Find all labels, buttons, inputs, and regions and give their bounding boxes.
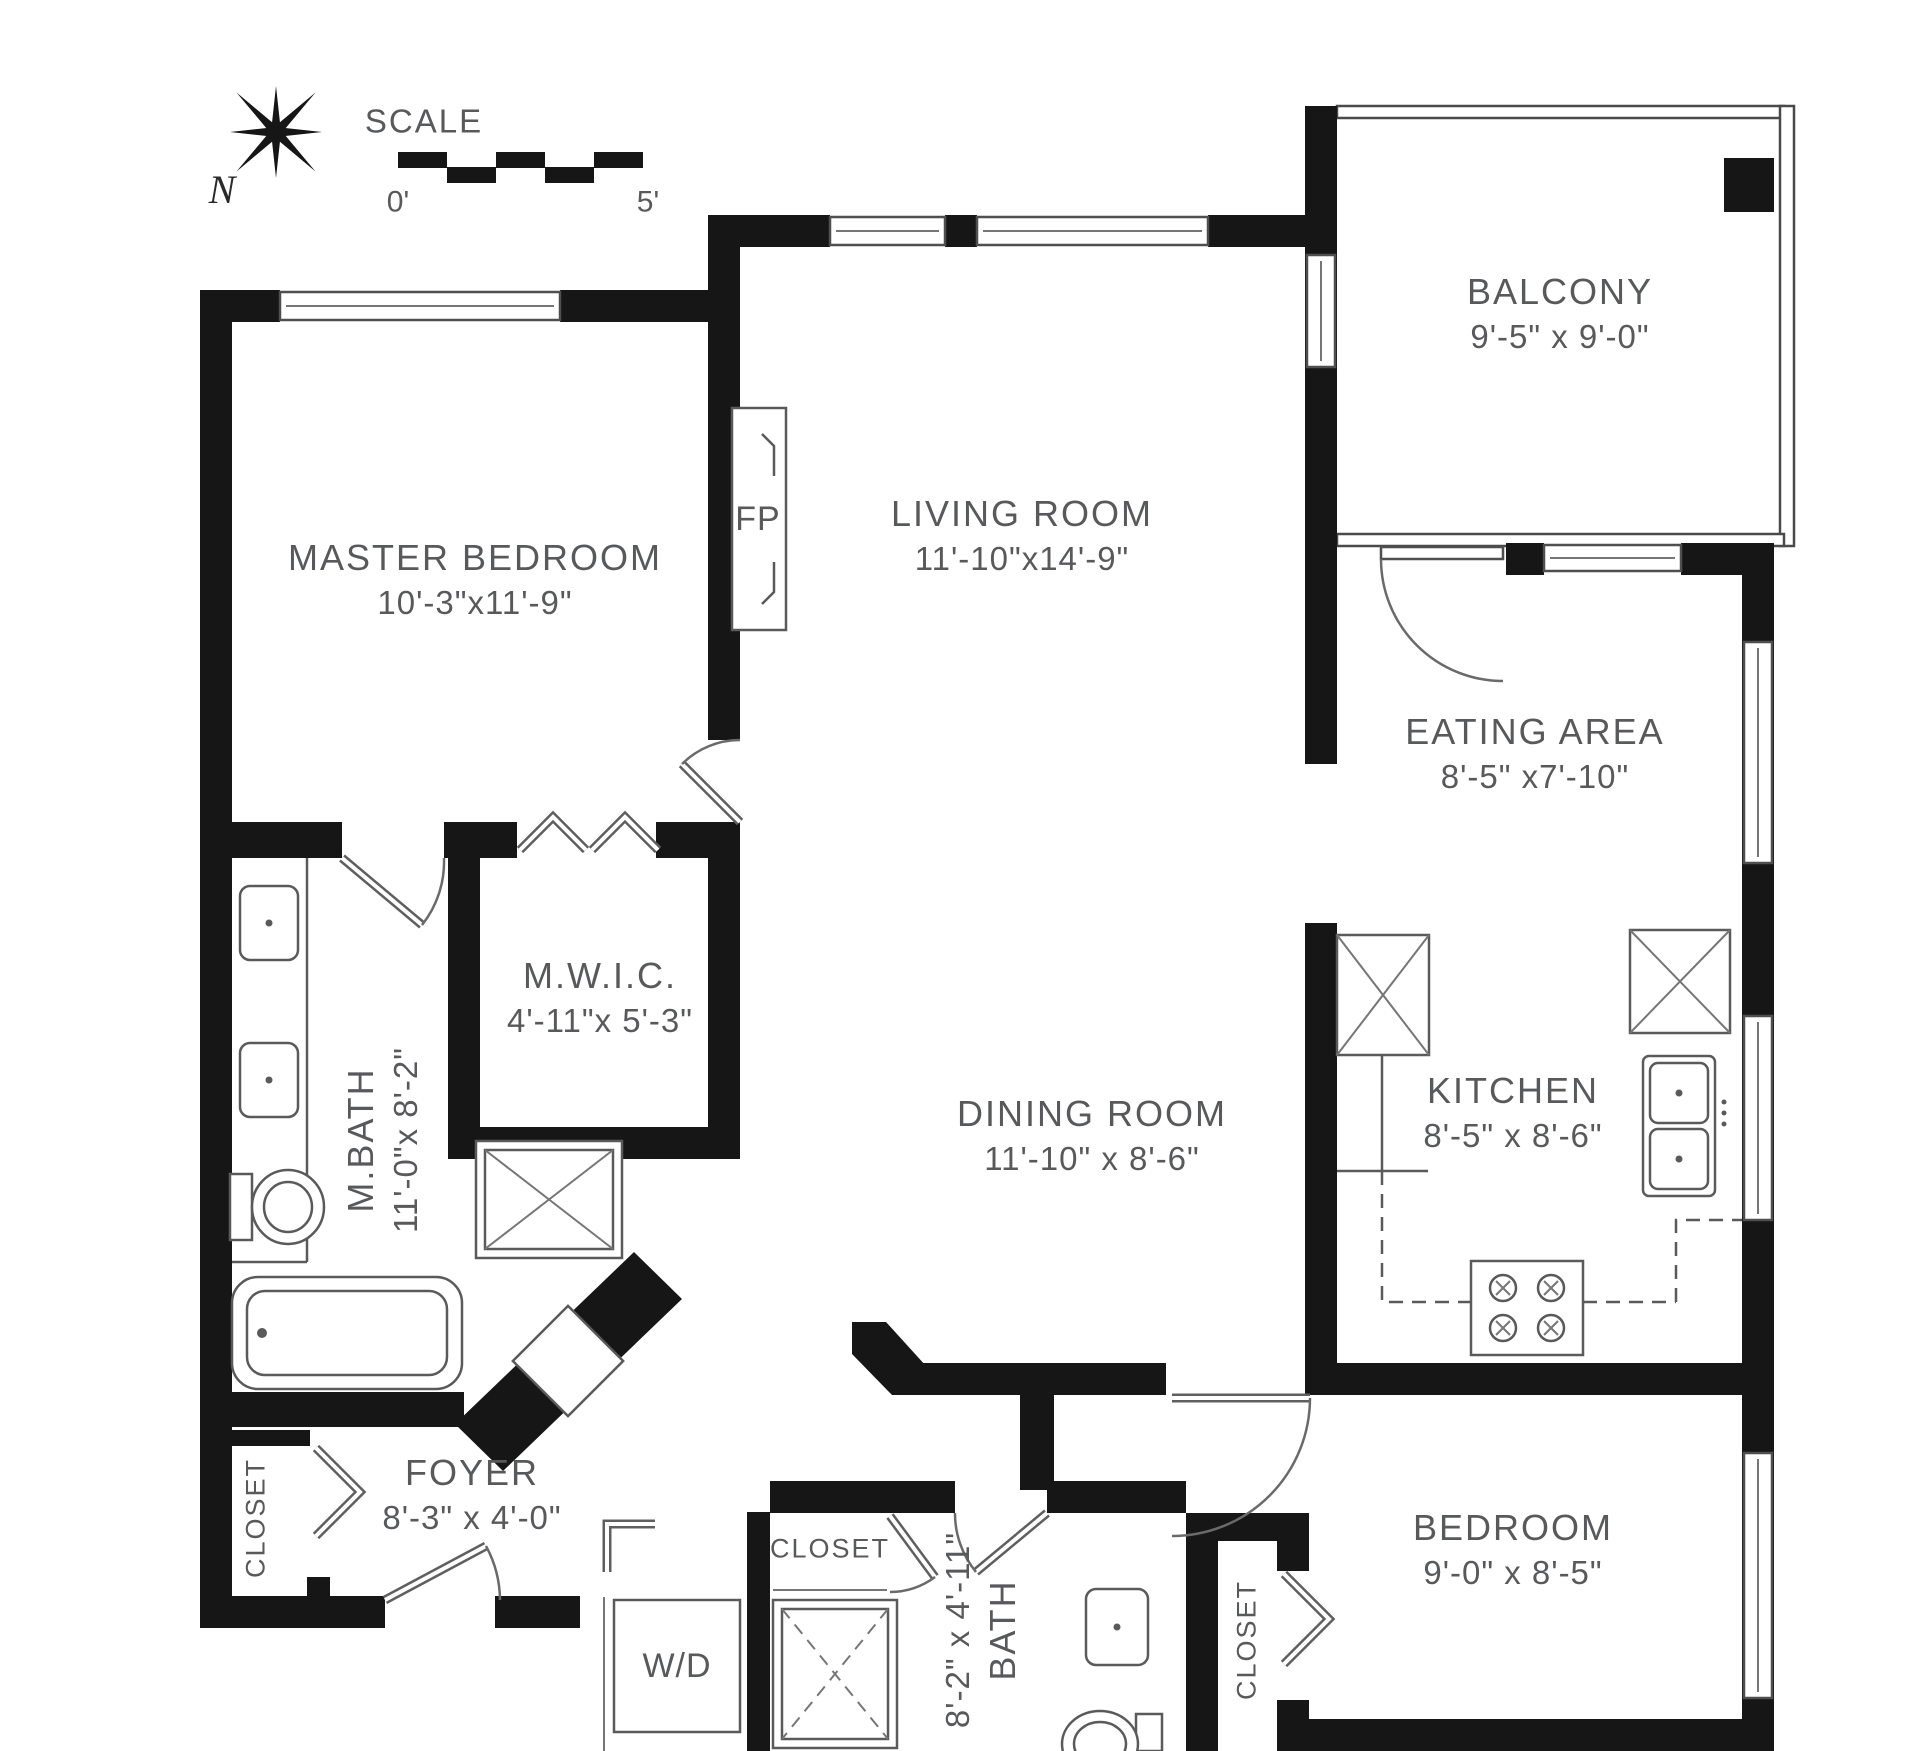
label-foyer: FOYER 8'-3" x 4'-0" xyxy=(382,1450,561,1540)
scale-zero: 0' xyxy=(387,183,409,222)
label-bath: 8'-2" x 4'-11" BATH xyxy=(937,1532,1027,1728)
label-bedroom-closet: CLOSET xyxy=(1229,1580,1264,1700)
kitchen-cabinet-left-icon xyxy=(1337,935,1429,1055)
floor-plan-drawing xyxy=(0,0,1920,1751)
door-hall-closet xyxy=(890,1516,935,1592)
window-living-room-right xyxy=(977,217,1208,245)
scale-title: SCALE xyxy=(365,101,483,144)
label-mwic: M.W.I.C. 4'-11"x 5'-3" xyxy=(507,953,693,1043)
scale-bar xyxy=(398,152,643,183)
floor-plan: N SCALE 0' 5' MASTER BEDROOM 10'-3"x11'-… xyxy=(0,0,1920,1751)
window-bedroom xyxy=(1744,1453,1772,1698)
bifold-foyer-closet xyxy=(316,1448,360,1536)
bath-sink-icon xyxy=(1086,1589,1148,1665)
kitchen-sink-icon xyxy=(1643,1056,1727,1196)
label-living-room: LIVING ROOM 11'-10"x14'-9" xyxy=(891,491,1153,581)
label-master-bedroom: MASTER BEDROOM 10'-3"x11'-9" xyxy=(288,535,662,625)
compass-north-label: N xyxy=(209,164,236,216)
label-washer-dryer: W/D xyxy=(642,1644,711,1688)
stove-icon xyxy=(1471,1261,1583,1355)
door-master-bath xyxy=(342,858,444,925)
bath-toilet-icon xyxy=(1062,1711,1162,1751)
window-living-room-left xyxy=(830,217,945,245)
balcony-column xyxy=(1724,158,1774,212)
window-kitchen xyxy=(1744,1016,1772,1220)
door-entry xyxy=(385,1546,500,1600)
window-master-bedroom xyxy=(280,292,560,320)
compass-icon xyxy=(230,86,322,178)
bifold-mwic xyxy=(520,817,658,850)
label-fireplace: FP xyxy=(735,497,780,541)
label-balcony: BALCONY 9'-5" x 9'-0" xyxy=(1467,269,1653,359)
scale-five: 5' xyxy=(637,183,659,222)
label-hall-closet: CLOSET xyxy=(770,1531,890,1566)
door-master-bedroom xyxy=(682,740,740,822)
bathtub-icon xyxy=(232,1277,462,1389)
door-wd-nook xyxy=(607,1524,655,1572)
label-bedroom: BEDROOM 9'-0" x 8'-5" xyxy=(1413,1505,1613,1595)
master-shower-icon xyxy=(476,1141,622,1258)
label-dining-room: DINING ROOM 11'-10" x 8'-6" xyxy=(957,1091,1227,1181)
window-balcony-side xyxy=(1307,255,1335,367)
door-balcony xyxy=(1381,547,1503,681)
bifold-bedroom-closet xyxy=(1284,1574,1329,1664)
label-kitchen: KITCHEN 8'-5" x 8'-6" xyxy=(1423,1068,1602,1158)
window-balcony-bottom xyxy=(1544,545,1681,571)
kitchen-cabinet-right-icon xyxy=(1630,930,1730,1033)
hall-shower-icon xyxy=(773,1600,897,1748)
label-master-bath: M.BATH 11'-0"x 8'-2" xyxy=(338,1047,428,1233)
window-eating-area xyxy=(1744,642,1772,863)
label-foyer-closet: CLOSET xyxy=(238,1458,273,1578)
label-eating-area: EATING AREA 8'-5" x7'-10" xyxy=(1405,709,1664,799)
master-toilet-icon xyxy=(230,1170,324,1244)
